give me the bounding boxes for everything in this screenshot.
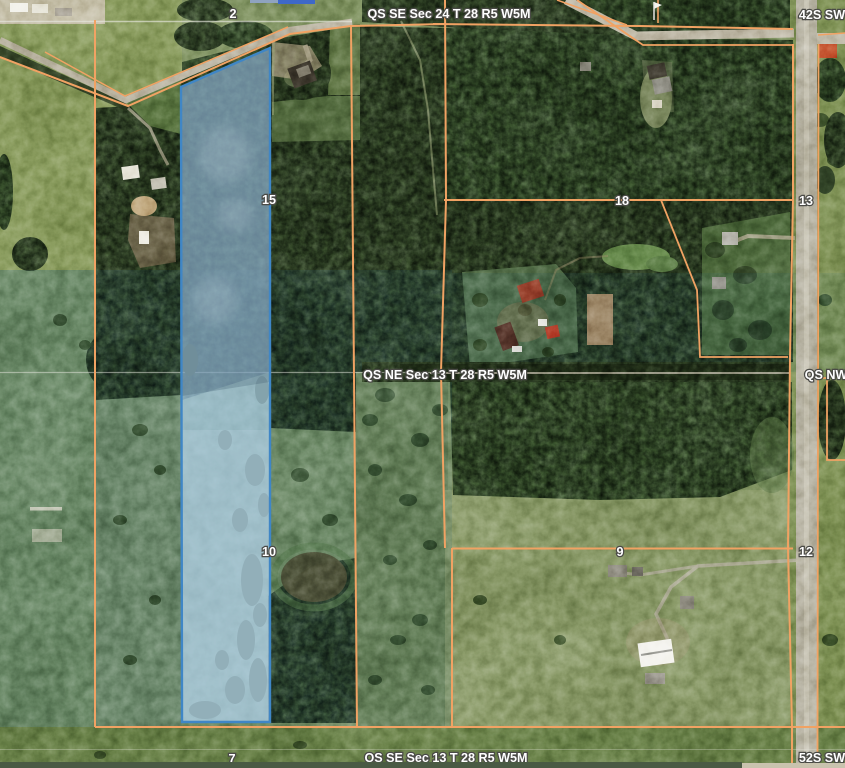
- svg-text:10: 10: [262, 545, 276, 559]
- svg-text:18: 18: [615, 194, 629, 208]
- svg-text:9: 9: [616, 545, 623, 559]
- svg-text:QS NE Sec 13 T 28 R5 W5M: QS NE Sec 13 T 28 R5 W5M: [363, 368, 527, 382]
- svg-text:2: 2: [229, 7, 236, 21]
- svg-text:QS SE Sec 24 T 28 R5 W5M: QS SE Sec 24 T 28 R5 W5M: [367, 7, 530, 21]
- svg-text:42S SW: 42S SW: [799, 8, 845, 22]
- svg-text:12: 12: [799, 545, 813, 559]
- svg-text:15: 15: [262, 193, 276, 207]
- svg-text:52S SW: 52S SW: [799, 751, 845, 765]
- svg-text:13: 13: [799, 194, 813, 208]
- svg-text:QS NW: QS NW: [805, 368, 845, 382]
